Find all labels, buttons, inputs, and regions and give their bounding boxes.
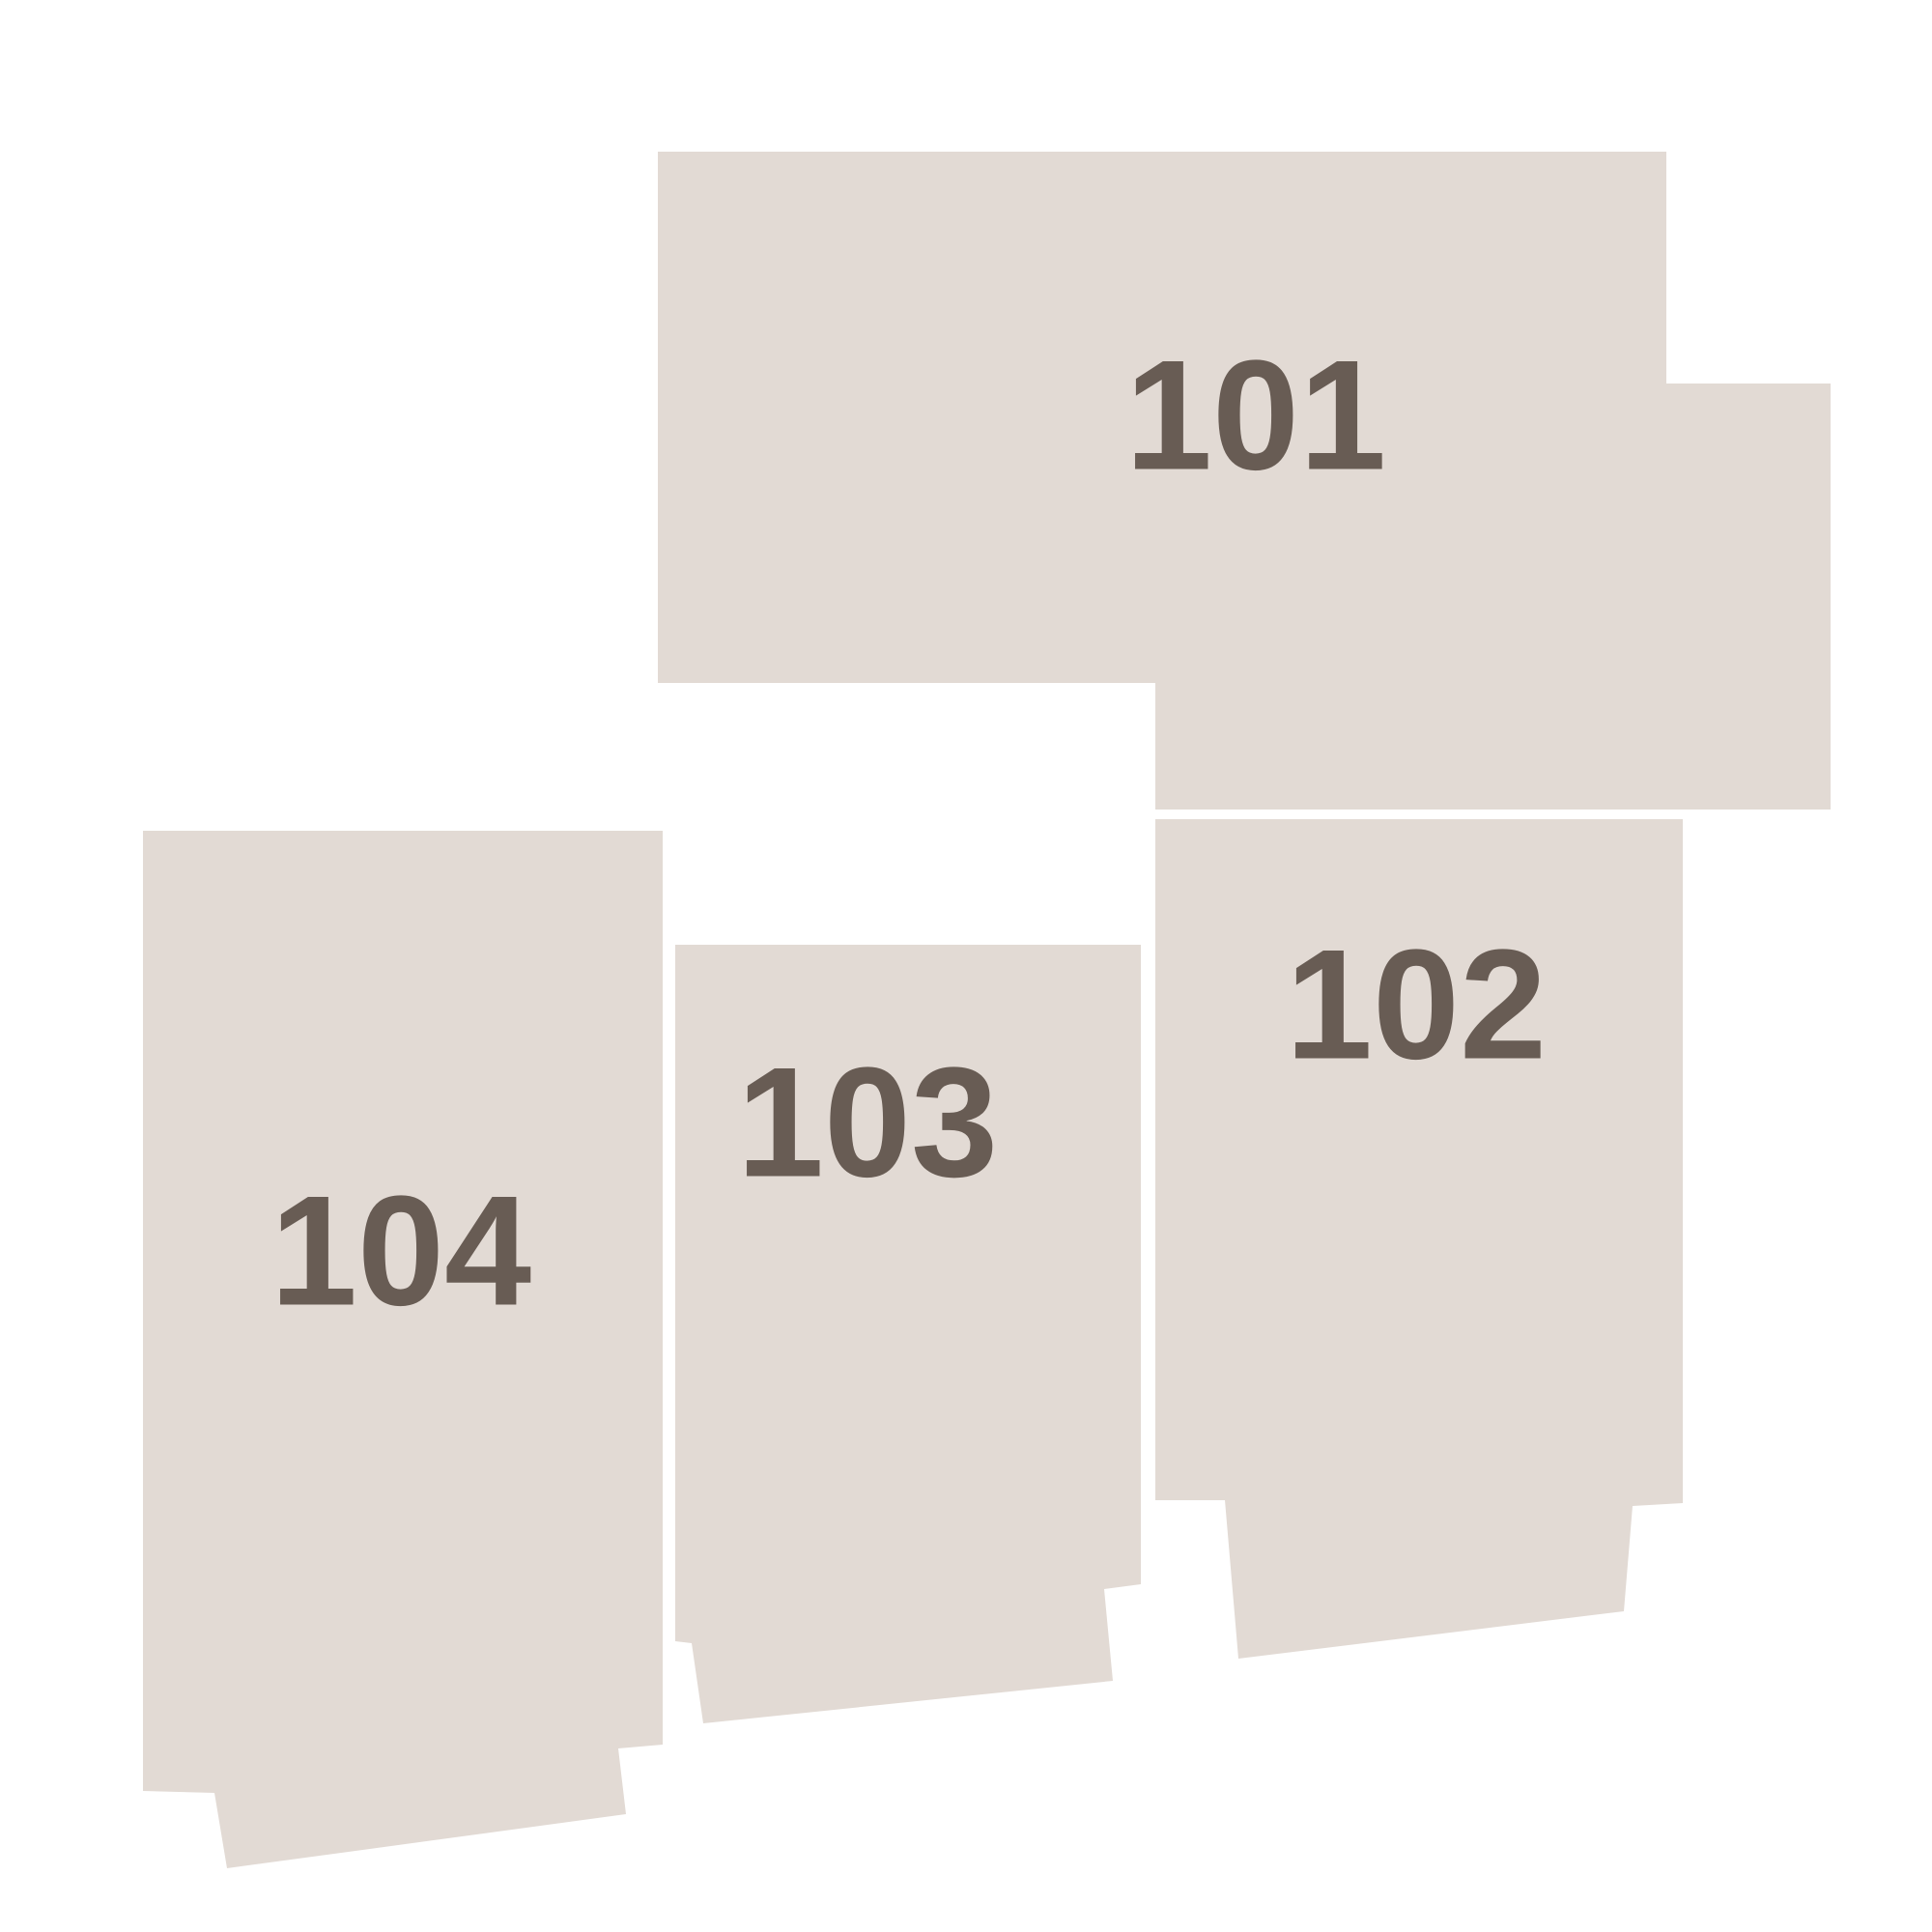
floor-plan-canvas: 101102103104 <box>0 0 1932 1932</box>
floor-plan-page: 101102103104 <box>0 0 1932 1932</box>
units-layer: 101102103104 <box>143 152 1831 1868</box>
unit-102-region[interactable] <box>1155 819 1683 1659</box>
unit-101-group: 101 <box>658 152 1831 810</box>
unit-101-region[interactable] <box>658 152 1831 810</box>
unit-103-region[interactable] <box>675 945 1141 1723</box>
unit-102-group: 102 <box>1155 819 1683 1659</box>
unit-104-group: 104 <box>143 831 663 1868</box>
unit-104-region[interactable] <box>143 831 663 1868</box>
unit-103-group: 103 <box>675 945 1141 1723</box>
